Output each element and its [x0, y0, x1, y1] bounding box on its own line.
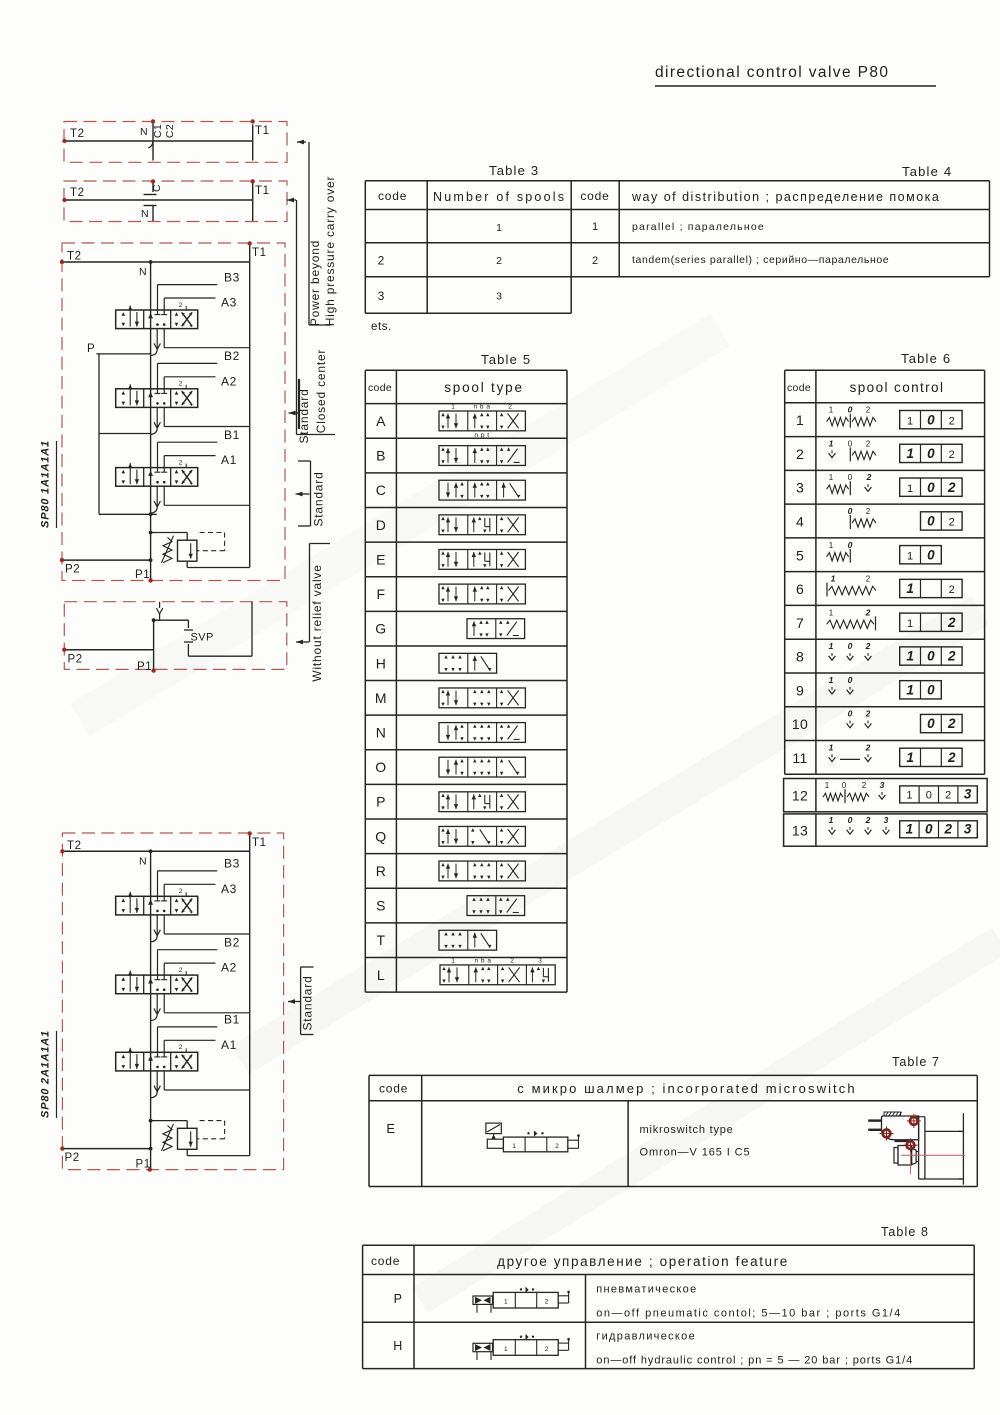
svg-text:1: 1 [504, 1346, 508, 1353]
svg-text:n p t: n p t [474, 432, 489, 439]
svg-text:3: 3 [538, 957, 542, 964]
svg-text:D: D [376, 517, 387, 533]
svg-text:13: 13 [792, 823, 808, 839]
svg-text:2: 2 [865, 607, 871, 617]
svg-text:2: 2 [545, 1346, 549, 1353]
svg-text:2: 2 [862, 781, 867, 790]
svg-text:1: 1 [906, 750, 914, 765]
svg-text:0: 0 [842, 781, 847, 790]
svg-text:0: 0 [927, 412, 935, 427]
svg-text:1: 1 [796, 412, 804, 428]
svg-text:B2: B2 [224, 349, 240, 363]
svg-text:2: 2 [866, 406, 871, 415]
svg-text:code: code [378, 189, 407, 203]
svg-text:2: 2 [945, 789, 951, 801]
svg-text:пневматическоe: пневматическоe [596, 1284, 697, 1296]
svg-text:spool type: spool type [444, 380, 524, 395]
svg-text:0: 0 [848, 439, 853, 448]
svg-text:C: C [376, 482, 387, 498]
svg-text:0: 0 [848, 473, 853, 482]
svg-text:0: 0 [927, 446, 935, 461]
svg-text:1: 1 [825, 781, 830, 790]
svg-text:Omron—V 165 I C5: Omron—V 165 I C5 [640, 1147, 751, 1159]
svg-text:R: R [376, 863, 387, 879]
svg-text:T1: T1 [255, 185, 270, 197]
svg-text:1: 1 [906, 789, 912, 801]
svg-text:1: 1 [906, 581, 914, 596]
svg-text:1: 1 [451, 404, 455, 411]
svg-text:n b a: n b a [474, 404, 491, 411]
svg-text:P2: P2 [68, 654, 83, 666]
svg-text:P: P [87, 343, 95, 355]
svg-text:C: C [151, 184, 163, 192]
svg-text:M: M [375, 690, 387, 706]
svg-text:1: 1 [906, 821, 914, 836]
svg-text:A1: A1 [221, 1038, 237, 1052]
svg-text:2: 2 [865, 742, 871, 752]
svg-text:spool control: spool control [850, 380, 945, 395]
svg-text:High pressure carry over: High pressure carry over [323, 176, 337, 327]
svg-text:F: F [376, 586, 385, 602]
svg-text:0: 0 [848, 641, 853, 651]
svg-text:1: 1 [907, 618, 913, 630]
svg-text:N: N [140, 126, 148, 138]
svg-text:2: 2 [865, 815, 871, 825]
svg-text:1: 1 [829, 641, 834, 651]
svg-text:0: 0 [848, 815, 853, 825]
svg-text:2: 2 [949, 449, 955, 461]
svg-text:с микро шалмер ; incorporated: с микро шалмер ; incorporated microswitc… [517, 1081, 856, 1096]
svg-text:Power beyond: Power beyond [308, 240, 322, 326]
svg-text:2: 2 [179, 1044, 183, 1051]
svg-text:9: 9 [796, 682, 804, 698]
svg-text:2: 2 [510, 957, 514, 964]
svg-text:1: 1 [906, 649, 914, 664]
svg-text:A2: A2 [221, 961, 237, 975]
svg-text:code: code [371, 1254, 400, 1268]
svg-text:1: 1 [906, 446, 914, 461]
svg-text:0: 0 [848, 405, 853, 415]
svg-text:T1: T1 [252, 247, 267, 259]
svg-text:ets.: ets. [371, 321, 392, 333]
svg-text:2: 2 [947, 649, 956, 664]
svg-text:code: code [580, 189, 609, 203]
svg-text:P2: P2 [65, 1152, 80, 1164]
svg-text:G: G [375, 621, 386, 637]
svg-text:H: H [376, 655, 387, 671]
svg-text:2: 2 [949, 517, 955, 529]
svg-text:on—off pneumatic contol; 5—10: on—off pneumatic contol; 5—10 bar ; port… [596, 1308, 901, 1320]
svg-text:3: 3 [378, 289, 385, 303]
svg-text:tandem(series parallel) ; сер: tandem(series parallel) ; серийно—парале… [632, 254, 889, 266]
svg-text:2: 2 [508, 404, 512, 411]
svg-text:2: 2 [947, 615, 956, 630]
svg-text:A1: A1 [221, 453, 237, 467]
svg-text:1: 1 [592, 221, 598, 233]
svg-text:code: code [368, 382, 392, 394]
svg-text:2: 2 [866, 507, 871, 516]
svg-text:2: 2 [949, 584, 955, 596]
svg-text:1: 1 [907, 415, 913, 427]
svg-text:2: 2 [796, 446, 804, 462]
svg-text:B1: B1 [224, 428, 240, 442]
svg-text:mikroswitch type: mikroswitch type [640, 1124, 734, 1136]
svg-text:3: 3 [880, 780, 885, 790]
svg-text:Number of spools: Number of spools [433, 190, 566, 204]
svg-text:P1: P1 [135, 569, 150, 581]
svg-text:1: 1 [829, 473, 834, 482]
svg-text:A3: A3 [221, 882, 237, 896]
svg-text:B: B [376, 448, 386, 464]
svg-text:N: N [376, 724, 387, 740]
svg-text:7: 7 [796, 615, 804, 631]
svg-text:A3: A3 [221, 296, 237, 310]
svg-text:1: 1 [504, 1299, 508, 1306]
svg-text:1: 1 [907, 483, 913, 495]
svg-text:3: 3 [496, 291, 502, 303]
svg-text:P1: P1 [137, 661, 152, 673]
svg-text:2: 2 [496, 255, 502, 267]
svg-text:code: code [379, 1082, 408, 1096]
svg-text:10: 10 [792, 716, 808, 732]
svg-text:T: T [376, 932, 385, 948]
svg-text:0: 0 [927, 649, 935, 664]
svg-text:2: 2 [866, 575, 871, 584]
svg-text:0: 0 [927, 716, 935, 731]
svg-text:6: 6 [796, 581, 804, 597]
svg-text:code: code [787, 382, 811, 394]
svg-text:parallel ; паралельноe: parallel ; паралельноe [632, 221, 765, 233]
svg-text:0: 0 [848, 506, 853, 516]
svg-text:0: 0 [848, 540, 853, 550]
svg-text:0: 0 [925, 821, 933, 836]
svg-text:T2: T2 [70, 187, 85, 199]
svg-text:2: 2 [947, 480, 956, 495]
svg-text:SVP: SVP [191, 632, 214, 644]
svg-text:N: N [139, 266, 147, 278]
svg-text:E: E [376, 551, 386, 567]
svg-text:0: 0 [927, 547, 935, 562]
svg-text:L: L [377, 967, 385, 983]
svg-text:N: N [141, 208, 149, 220]
svg-text:3: 3 [964, 786, 972, 801]
svg-text:B3: B3 [224, 857, 240, 871]
svg-text:0: 0 [927, 682, 935, 697]
svg-text:2: 2 [592, 255, 598, 267]
svg-text:Standard: Standard [297, 388, 311, 443]
svg-text:1: 1 [451, 957, 455, 964]
svg-text:Closed center: Closed center [314, 349, 328, 433]
svg-text:Table 8: Table 8 [881, 1225, 929, 1239]
svg-text:3: 3 [964, 821, 972, 836]
svg-text:2: 2 [949, 415, 955, 427]
svg-text:Without relief valve: Without relief valve [310, 564, 324, 681]
svg-text:Table 7: Table 7 [892, 1055, 940, 1069]
svg-text:2: 2 [947, 716, 956, 731]
svg-text:2: 2 [179, 459, 183, 466]
svg-text:0: 0 [848, 709, 853, 719]
svg-text:SP80 2A1A1A1: SP80 2A1A1A1 [40, 1030, 52, 1118]
svg-text:directional control valve P80: directional control valve P80 [655, 64, 889, 81]
svg-text:2: 2 [947, 750, 956, 765]
svg-text:4: 4 [796, 513, 804, 529]
svg-text:3: 3 [884, 815, 889, 825]
svg-text:1: 1 [829, 815, 834, 825]
svg-text:2: 2 [865, 641, 871, 651]
svg-text:1: 1 [906, 682, 914, 697]
svg-text:N: N [139, 856, 147, 868]
svg-text:3: 3 [796, 480, 804, 496]
svg-text:8: 8 [796, 649, 804, 665]
svg-text:1: 1 [829, 742, 834, 752]
svg-text:1: 1 [829, 406, 834, 415]
svg-text:другое управление ; operatio: другое управление ; operation feature [497, 1254, 789, 1269]
svg-text:Q: Q [375, 828, 386, 844]
svg-text:Table 4: Table 4 [902, 164, 952, 179]
svg-text:A2: A2 [221, 374, 237, 388]
svg-text:O: O [375, 759, 386, 775]
svg-text:12: 12 [792, 788, 808, 804]
svg-text:1: 1 [907, 550, 913, 562]
svg-text:0: 0 [927, 480, 935, 495]
svg-text:Standard: Standard [312, 471, 326, 526]
svg-text:B1: B1 [224, 1013, 240, 1027]
svg-text:2: 2 [378, 254, 385, 268]
svg-text:Standard: Standard [301, 975, 315, 1030]
svg-text:H: H [393, 1339, 403, 1353]
svg-text:way of distribution ; распред: way of distribution ; распределение помо… [631, 190, 940, 204]
svg-text:Table 6: Table 6 [901, 351, 951, 366]
svg-text:P: P [394, 1292, 403, 1306]
svg-text:0: 0 [848, 675, 853, 685]
svg-text:E: E [386, 1121, 395, 1136]
svg-text:2: 2 [179, 381, 183, 388]
svg-text:T2: T2 [67, 251, 82, 263]
svg-text:B3: B3 [224, 270, 240, 284]
svg-text:1: 1 [829, 608, 834, 617]
svg-text:A: A [376, 413, 386, 429]
svg-text:2: 2 [179, 888, 183, 895]
svg-text:2: 2 [865, 709, 871, 719]
svg-text:T2: T2 [70, 128, 85, 140]
svg-text:1: 1 [829, 438, 834, 448]
svg-text:SP80 1A1A1A1: SP80 1A1A1A1 [40, 440, 52, 528]
svg-text:T2: T2 [67, 840, 82, 852]
svg-text:2: 2 [555, 1143, 559, 1150]
svg-text:2: 2 [179, 967, 183, 974]
svg-text:11: 11 [792, 750, 807, 766]
svg-text:C1: C1 [152, 124, 164, 138]
svg-text:1: 1 [829, 541, 834, 550]
svg-text:2: 2 [943, 821, 952, 836]
svg-text:T1: T1 [252, 837, 267, 849]
svg-text:P: P [376, 794, 386, 810]
svg-text:0: 0 [927, 514, 935, 529]
svg-text:T1: T1 [255, 125, 270, 137]
svg-text:1: 1 [512, 1143, 516, 1150]
svg-text:1: 1 [829, 675, 834, 685]
svg-text:2: 2 [866, 439, 871, 448]
svg-text:2: 2 [866, 472, 872, 482]
svg-text:гидравлическоe: гидравлическоe [596, 1331, 696, 1343]
svg-text:C2: C2 [164, 124, 176, 138]
svg-text:B2: B2 [224, 936, 240, 950]
svg-text:0: 0 [926, 789, 932, 801]
svg-text:n b a: n b a [475, 957, 492, 964]
svg-text:1: 1 [831, 574, 836, 584]
svg-text:Table 5: Table 5 [481, 352, 531, 367]
svg-text:P2: P2 [65, 564, 80, 576]
svg-text:1: 1 [496, 222, 502, 234]
svg-text:on—off hydraulic control ; pn: on—off hydraulic control ; pn = 5 — 20 b… [596, 1355, 913, 1367]
svg-text:2: 2 [179, 302, 183, 309]
svg-text:2: 2 [545, 1299, 549, 1306]
svg-text:Table 3: Table 3 [489, 163, 539, 178]
svg-text:5: 5 [796, 547, 804, 563]
svg-text:S: S [376, 898, 386, 914]
